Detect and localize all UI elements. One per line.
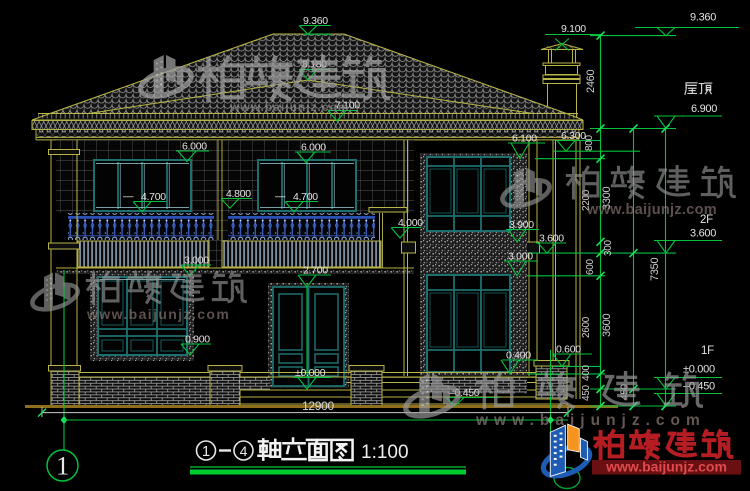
svg-text:3600: 3600 <box>601 314 613 337</box>
svg-text:4: 4 <box>240 443 248 459</box>
svg-text:2460: 2460 <box>585 70 597 93</box>
svg-text:450: 450 <box>581 384 592 401</box>
svg-text:1: 1 <box>202 443 210 460</box>
svg-text:9.360: 9.360 <box>303 15 328 27</box>
svg-text:www.baijunjz.com: www.baijunjz.com <box>605 459 727 475</box>
svg-text:6.300: 6.300 <box>561 130 586 142</box>
svg-text:4.700: 4.700 <box>293 191 318 203</box>
svg-text:4.700: 4.700 <box>141 191 166 203</box>
svg-text:www.baijunjz.com: www.baijunjz.com <box>86 306 230 322</box>
svg-text:3.000: 3.000 <box>508 251 533 263</box>
svg-text:7350: 7350 <box>649 258 661 281</box>
svg-text:3.900: 3.900 <box>509 219 534 231</box>
svg-text:—: — <box>123 191 134 203</box>
svg-text:1F: 1F <box>701 345 714 357</box>
svg-text:600: 600 <box>585 258 596 275</box>
svg-text:4.000: 4.000 <box>398 217 423 229</box>
svg-text:www.baijunjz.com: www.baijunjz.com <box>229 100 350 114</box>
svg-text:6.000: 6.000 <box>182 141 207 153</box>
svg-text:0.400: 0.400 <box>506 350 531 362</box>
svg-text:0.900: 0.900 <box>185 334 210 346</box>
svg-text:1:100: 1:100 <box>361 442 409 463</box>
svg-text:0.600: 0.600 <box>556 344 581 356</box>
svg-text:9.100: 9.100 <box>561 23 586 35</box>
svg-text:400: 400 <box>581 364 592 381</box>
svg-text:2.700: 2.700 <box>303 265 328 277</box>
svg-text:9.360: 9.360 <box>690 12 716 24</box>
svg-text:300: 300 <box>603 239 614 256</box>
svg-text:4.800: 4.800 <box>226 188 251 200</box>
svg-text:3.600: 3.600 <box>690 228 716 240</box>
svg-text:6.000: 6.000 <box>301 142 326 154</box>
svg-text:800: 800 <box>584 134 595 151</box>
svg-text:www.baijunjz.com: www.baijunjz.com <box>475 412 706 429</box>
svg-text:www.baijunjz.com: www.baijunjz.com <box>586 202 717 218</box>
svg-text:3.600: 3.600 <box>539 233 564 245</box>
svg-text:±0.000: ±0.000 <box>295 367 326 379</box>
svg-text:6.100: 6.100 <box>512 133 537 145</box>
svg-text:2600: 2600 <box>581 316 592 338</box>
svg-text:1: 1 <box>56 452 69 481</box>
svg-text:12900: 12900 <box>302 399 334 413</box>
svg-text:—: — <box>275 191 286 203</box>
svg-text:3.000: 3.000 <box>184 255 209 267</box>
svg-text:6.900: 6.900 <box>691 103 717 115</box>
